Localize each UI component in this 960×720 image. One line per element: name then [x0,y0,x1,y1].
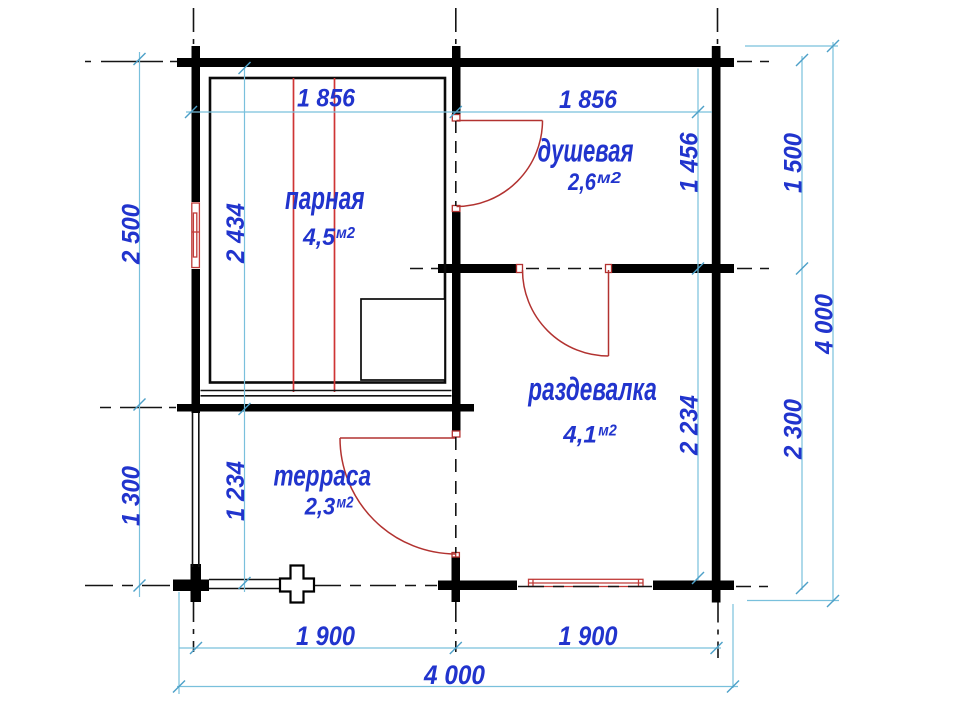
svg-text:1 900: 1 900 [559,621,618,651]
svg-text:2 434: 2 434 [222,203,250,264]
svg-text:2 500: 2 500 [118,204,146,265]
svg-text:м2: м2 [597,170,621,187]
svg-text:1 900: 1 900 [296,621,355,651]
svg-text:2,6: 2,6 [567,169,596,196]
svg-text:1 456: 1 456 [676,131,704,192]
svg-text:раздевалка: раздевалка [528,371,657,407]
svg-text:1 300: 1 300 [118,466,146,526]
svg-text:4 000: 4 000 [423,660,485,690]
svg-text:м2: м2 [598,423,617,440]
svg-text:парная: парная [285,180,365,216]
svg-text:1 856: 1 856 [559,86,618,114]
svg-text:2 234: 2 234 [676,395,704,456]
svg-text:1 856: 1 856 [297,85,356,113]
svg-text:1 500: 1 500 [780,133,808,193]
svg-text:м2: м2 [336,225,355,242]
svg-text:4,5: 4,5 [302,224,336,251]
svg-text:терраса: терраса [274,460,372,493]
svg-text:2 300: 2 300 [780,399,808,460]
svg-text:м2: м2 [337,495,354,512]
svg-text:4,1: 4,1 [562,422,597,449]
svg-text:2,3: 2,3 [304,494,336,521]
svg-text:1 234: 1 234 [222,461,250,521]
svg-text:душевая: душевая [538,133,634,169]
svg-text:4 000: 4 000 [811,294,839,355]
